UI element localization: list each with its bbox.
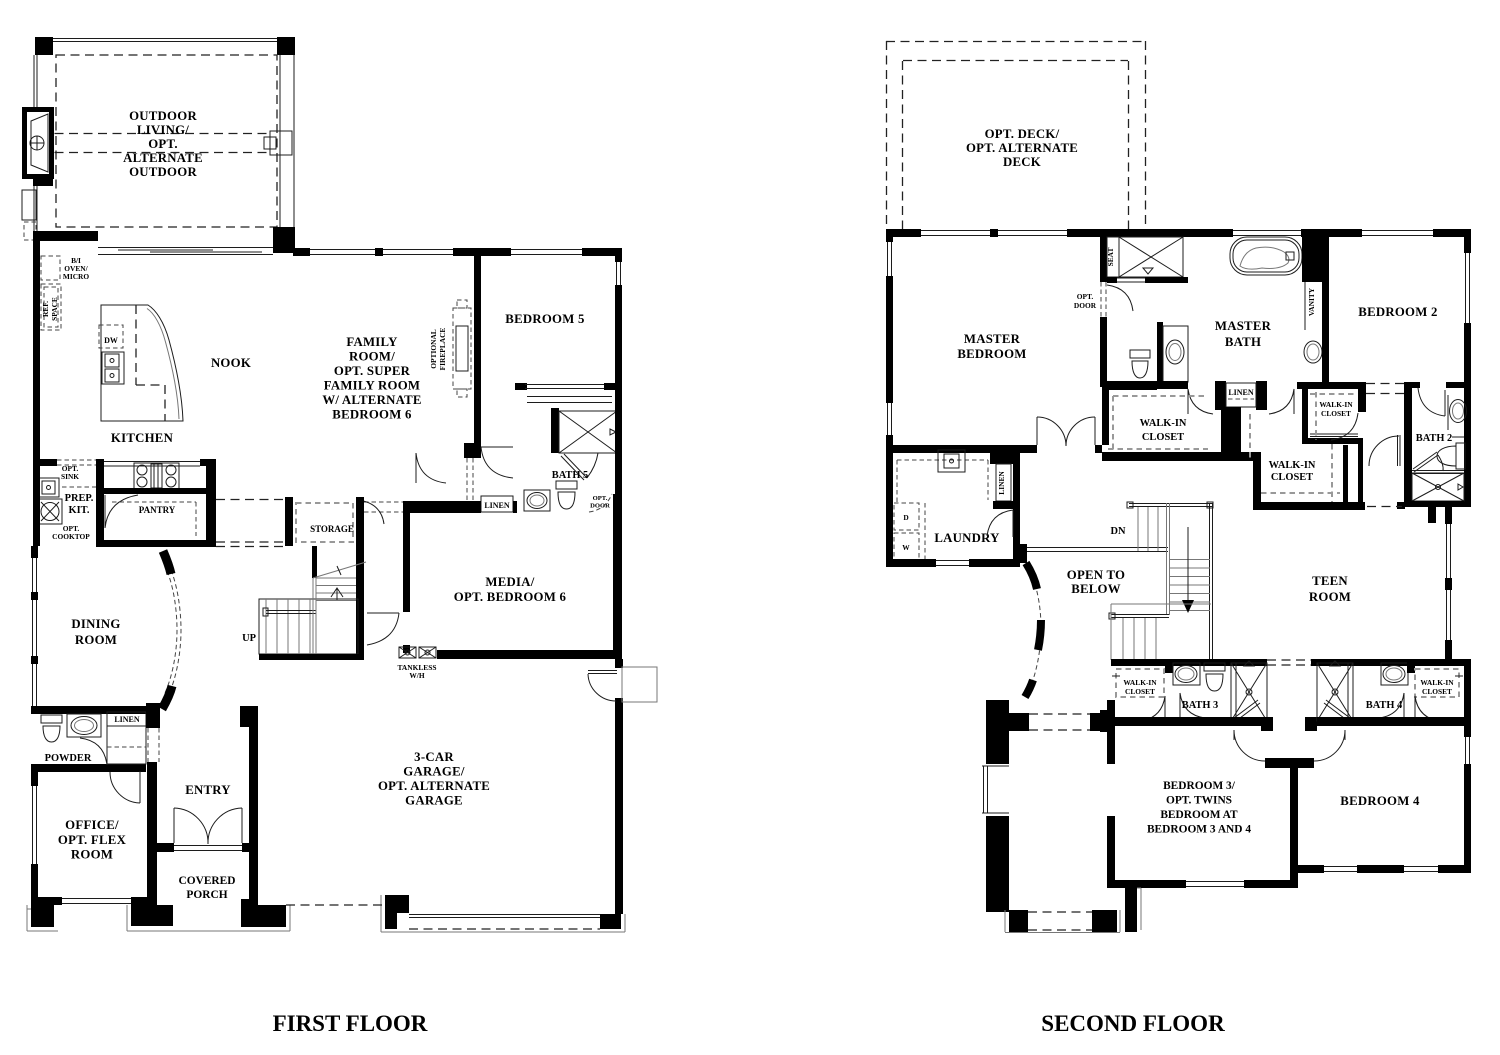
svg-text:BEDROOM AT: BEDROOM AT [1160,809,1238,821]
svg-text:OPTIONAL: OPTIONAL [429,329,438,368]
svg-text:BATH 5: BATH 5 [552,470,588,481]
svg-text:OUTDOOR: OUTDOOR [129,165,197,179]
svg-text:WALK-IN: WALK-IN [1140,418,1187,429]
svg-text:MASTER: MASTER [1215,319,1272,333]
svg-text:ROOM: ROOM [71,848,113,862]
svg-text:NOOK: NOOK [211,356,251,370]
svg-text:OPT. ALTERNATE: OPT. ALTERNATE [966,141,1078,155]
svg-text:BEDROOM 5: BEDROOM 5 [505,312,584,326]
svg-text:D: D [903,513,908,522]
svg-text:DINING: DINING [71,617,120,631]
svg-text:GARAGE: GARAGE [405,794,463,808]
svg-text:BEDROOM 4: BEDROOM 4 [1340,794,1420,808]
svg-text:VANITY: VANITY [1307,287,1316,316]
svg-text:SEAT: SEAT [1106,248,1115,267]
svg-text:W/H: W/H [409,671,424,680]
svg-text:3-CAR: 3-CAR [414,750,454,764]
svg-text:OPT. DECK/: OPT. DECK/ [985,127,1060,141]
svg-text:OPT. BEDROOM 6: OPT. BEDROOM 6 [454,590,567,604]
svg-text:OUTDOOR: OUTDOOR [129,109,197,123]
svg-text:WALK-IN: WALK-IN [1420,678,1454,687]
svg-text:BATH 2: BATH 2 [1416,433,1452,444]
svg-text:ROOM: ROOM [1309,590,1351,604]
svg-text:LINEN: LINEN [484,501,510,510]
svg-text:OPT. FLEX: OPT. FLEX [58,833,127,847]
svg-text:DN: DN [1110,526,1126,537]
svg-text:FIRST FLOOR: FIRST FLOOR [273,1011,428,1036]
svg-text:OPT. SUPER: OPT. SUPER [334,364,411,378]
svg-text:LINEN: LINEN [114,715,140,724]
svg-text:SINK: SINK [61,472,79,481]
svg-text:LINEN: LINEN [1228,388,1254,397]
svg-text:CLOSET: CLOSET [1125,687,1155,696]
svg-text:MICRO: MICRO [63,272,90,281]
svg-text:OPEN TO: OPEN TO [1067,568,1126,582]
svg-text:CLOSET: CLOSET [1321,409,1351,418]
svg-text:FIREPLACE: FIREPLACE [438,328,447,371]
svg-text:DW: DW [104,336,118,345]
svg-text:CLOSET: CLOSET [1142,432,1184,443]
svg-text:COVERED: COVERED [179,875,236,887]
svg-text:MEDIA/: MEDIA/ [485,575,534,589]
svg-text:UP: UP [242,633,257,644]
svg-text:ENTRY: ENTRY [185,783,231,797]
svg-text:STORAGE: STORAGE [310,524,354,534]
svg-text:REF.: REF. [41,301,50,317]
svg-text:PREP.: PREP. [65,493,94,504]
svg-text:GARAGE/: GARAGE/ [403,765,465,779]
svg-text:TEEN: TEEN [1312,574,1348,588]
svg-text:KITCHEN: KITCHEN [111,431,174,445]
svg-text:SPACE: SPACE [50,297,59,321]
svg-text:KIT.: KIT. [69,505,90,516]
svg-text:BEDROOM 3/: BEDROOM 3/ [1163,780,1236,792]
svg-text:POWDER: POWDER [45,753,92,764]
svg-text:FAMILY: FAMILY [346,335,397,349]
svg-text:BEDROOM 3 AND 4: BEDROOM 3 AND 4 [1147,824,1251,836]
svg-text:ALTERNATE: ALTERNATE [123,151,203,165]
svg-text:OPT.: OPT. [593,495,608,502]
svg-text:LAUNDRY: LAUNDRY [934,531,999,545]
svg-text:MASTER: MASTER [964,332,1021,346]
svg-text:CLOSET: CLOSET [1422,687,1452,696]
svg-text:DECK: DECK [1003,155,1041,169]
svg-text:ROOM: ROOM [75,633,117,647]
svg-text:OFFICE/: OFFICE/ [65,818,119,832]
svg-text:WALK-IN: WALK-IN [1123,678,1157,687]
svg-text:LINEN: LINEN [997,471,1006,495]
svg-text:LIVING/: LIVING/ [137,123,189,137]
svg-text:WALK-IN: WALK-IN [1319,400,1353,409]
svg-text:BELOW: BELOW [1071,582,1121,596]
svg-text:OPT. TWINS: OPT. TWINS [1166,795,1232,807]
svg-text:BEDROOM 2: BEDROOM 2 [1358,305,1437,319]
svg-text:BATH: BATH [1225,335,1261,349]
svg-text:BEDROOM: BEDROOM [957,347,1026,361]
svg-text:CLOSET: CLOSET [1271,472,1313,483]
svg-text:SECOND FLOOR: SECOND FLOOR [1041,1011,1225,1036]
svg-text:COOKTOP: COOKTOP [52,532,90,541]
svg-text:WALK-IN: WALK-IN [1269,460,1316,471]
svg-text:BEDROOM 6: BEDROOM 6 [332,408,412,422]
svg-text:OPT.: OPT. [1077,292,1094,301]
svg-text:ROOM/: ROOM/ [349,350,395,364]
svg-text:W: W [902,543,910,552]
svg-text:OPT. ALTERNATE: OPT. ALTERNATE [378,779,490,793]
svg-text:PANTRY: PANTRY [139,505,176,515]
svg-text:DOOR: DOOR [1074,301,1097,310]
svg-text:FAMILY ROOM: FAMILY ROOM [324,379,420,393]
svg-text:OPT.: OPT. [148,137,178,151]
svg-text:W/ ALTERNATE: W/ ALTERNATE [322,393,421,407]
svg-text:PORCH: PORCH [186,889,227,901]
